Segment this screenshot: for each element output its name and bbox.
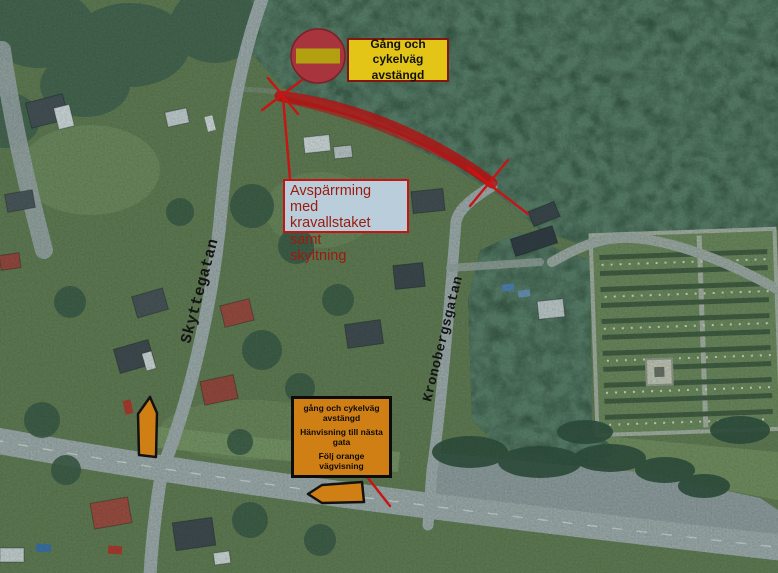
sign-label-line1: Gång och cykelväg bbox=[349, 37, 447, 68]
detour-info-box: gång och cykelväg avstängd Hänvisning ti… bbox=[291, 396, 392, 478]
no-entry-sign-icon bbox=[291, 29, 345, 83]
detour-line1: gång och cykelväg avstängd bbox=[296, 403, 387, 423]
detour-line2: Hänvisning till nästa gata bbox=[296, 427, 387, 447]
annotated-satellite-map: Gång och cykelväg avstängd Avspärrming m… bbox=[0, 0, 778, 573]
barrier-note-box: Avspärrming med kravallstaket samt skylt… bbox=[283, 179, 409, 233]
detour-line3: Följ orange vägvisning bbox=[296, 451, 387, 471]
sign-label-line2: avstängd bbox=[372, 68, 425, 84]
satellite-map-image bbox=[0, 0, 778, 573]
image-tint bbox=[0, 0, 778, 573]
closed-path-sign-label: Gång och cykelväg avstängd bbox=[347, 38, 449, 82]
barrier-note-line2: kravallstaket samt bbox=[290, 215, 402, 247]
barrier-note-line3: skyltning bbox=[290, 248, 402, 264]
barrier-note-line1: Avspärrming med bbox=[290, 183, 402, 215]
